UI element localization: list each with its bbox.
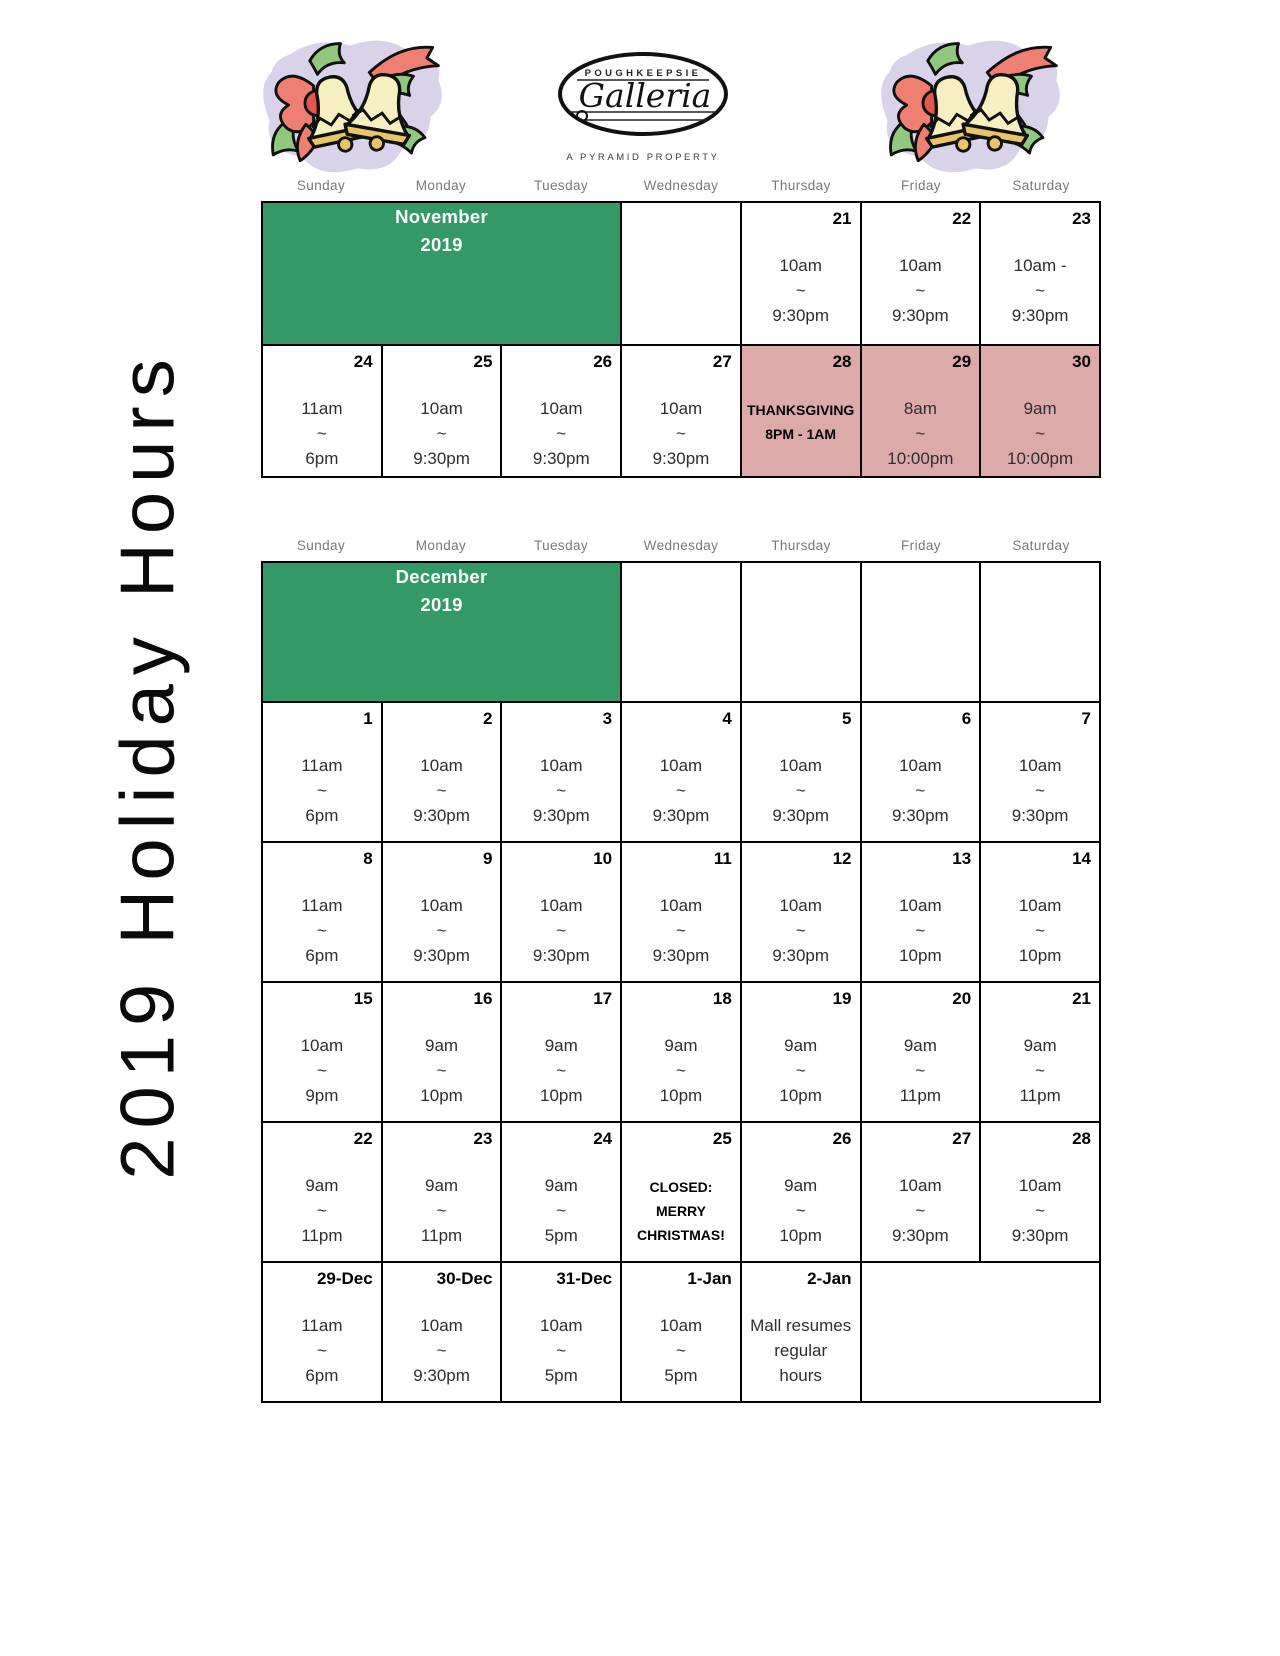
empty-day-cell [621, 202, 741, 345]
date-label: 9 [383, 843, 501, 869]
date-label: 15 [263, 983, 381, 1009]
store-hours: 10am~5pm [502, 1313, 620, 1388]
galleria-logo-oval: POUGHKEEPSIE Galleria [555, 50, 731, 142]
bells-icon [874, 34, 1066, 178]
store-hours: 9am~10pm [622, 1033, 740, 1108]
store-hours: 10am~10pm [981, 893, 1099, 968]
day-cell: 1310am~10pm [861, 842, 981, 982]
store-hours: 10am~9:30pm [862, 1173, 980, 1248]
holiday-hours-page: 2019 Holiday Hours POUGHKEEPSIE Galleria… [0, 0, 1280, 1656]
store-hours: 9am~11pm [981, 1033, 1099, 1108]
store-hours: 9am~10pm [742, 1173, 860, 1248]
date-label: 24 [502, 1123, 620, 1149]
day-cell: 310am~9:30pm [501, 702, 621, 842]
weekday-label: Saturday [981, 178, 1101, 193]
date-label: 31-Dec [502, 1263, 620, 1289]
weekday-label: Tuesday [501, 538, 621, 553]
weekday-label: Wednesday [621, 178, 741, 193]
date-label: 28 [742, 346, 860, 372]
date-label: 26 [742, 1123, 860, 1149]
store-hours: 10am~9:30pm [383, 893, 501, 968]
date-label: 8 [263, 843, 381, 869]
day-cell: 210am~9:30pm [382, 702, 502, 842]
day-cell: 25CLOSED:MERRYCHRISTMAS! [621, 1122, 741, 1262]
weekday-label: Friday [861, 538, 981, 553]
date-label: 11 [622, 843, 740, 869]
store-hours: 10am -~9:30pm [981, 253, 1099, 328]
day-cell: 1510am~9pm [262, 982, 382, 1122]
day-cell: 2610am~9:30pm [501, 345, 621, 477]
date-label: 16 [383, 983, 501, 1009]
store-hours: 11am~6pm [263, 1313, 381, 1388]
date-label: 20 [862, 983, 980, 1009]
store-hours: 10am~9:30pm [502, 893, 620, 968]
store-hours: 9am~11pm [383, 1173, 501, 1248]
day-cell: 30-Dec10am~9:30pm [382, 1262, 502, 1402]
day-cell: 179am~10pm [501, 982, 621, 1122]
weekday-label: Tuesday [501, 178, 621, 193]
blank-area [861, 1262, 981, 1402]
christmas-bells-image [874, 34, 1066, 178]
day-cell: 2710am~9:30pm [621, 345, 741, 477]
date-label: 25 [622, 1123, 740, 1149]
store-hours: 11am~6pm [263, 753, 381, 828]
day-cell: 2510am~9:30pm [382, 345, 502, 477]
day-cell: 169am~10pm [382, 982, 502, 1122]
date-label: 30 [981, 346, 1099, 372]
weekday-label: Sunday [261, 538, 381, 553]
date-label: 6 [862, 703, 980, 729]
day-cell: 610am~9:30pm [861, 702, 981, 842]
weekday-label: Monday [381, 538, 501, 553]
store-hours: 9am~11pm [263, 1173, 381, 1248]
day-cell: 2210am~9:30pm [861, 202, 981, 345]
store-hours: 10am~9:30pm [862, 753, 980, 828]
store-hours: 10am~9:30pm [383, 1313, 501, 1388]
holiday-note: THANKSGIVING8PM - 1AM [742, 398, 860, 446]
store-hours: 9am~10pm [502, 1033, 620, 1108]
day-cell: 2310am -~9:30pm [980, 202, 1100, 345]
empty-day-cell [741, 562, 861, 702]
date-label: 2 [383, 703, 501, 729]
store-hours: 9am~11pm [862, 1033, 980, 1108]
weekday-label: Wednesday [621, 538, 741, 553]
day-cell: 28THANKSGIVING8PM - 1AM [741, 345, 861, 477]
day-cell: 298am~10:00pm [861, 345, 981, 477]
date-label: 21 [981, 983, 1099, 1009]
day-cell: 209am~11pm [861, 982, 981, 1122]
day-cell: 910am~9:30pm [382, 842, 502, 982]
day-cell: 1-Jan10am~5pm [621, 1262, 741, 1402]
date-label: 13 [862, 843, 980, 869]
store-hours: 10am~9:30pm [981, 753, 1099, 828]
weekday-label: Friday [861, 178, 981, 193]
date-label: 27 [862, 1123, 980, 1149]
store-hours: 10am~9:30pm [383, 396, 501, 471]
day-cell: 2810am~9:30pm [980, 1122, 1100, 1262]
page-title: 2019 Holiday Hours [105, 350, 192, 1180]
store-hours: 10am~10pm [862, 893, 980, 968]
store-hours: 10am~9:30pm [622, 893, 740, 968]
day-cell: 2110am~9:30pm [741, 202, 861, 345]
day-cell: 31-Dec10am~5pm [501, 1262, 621, 1402]
day-cell: 229am~11pm [262, 1122, 382, 1262]
date-label: 14 [981, 843, 1099, 869]
date-label: 22 [263, 1123, 381, 1149]
day-cell: 1210am~9:30pm [741, 842, 861, 982]
date-label: 25 [383, 346, 501, 372]
day-cell: 249am~5pm [501, 1122, 621, 1262]
date-label: 17 [502, 983, 620, 1009]
store-hours: 9am~10pm [742, 1033, 860, 1108]
day-cell: 2710am~9:30pm [861, 1122, 981, 1262]
november-title: November2019 [262, 202, 621, 345]
store-hours: 10am~9:30pm [622, 753, 740, 828]
weekday-label: Thursday [741, 538, 861, 553]
date-label: 4 [622, 703, 740, 729]
november-grid: November20192110am~9:30pm2210am~9:30pm23… [261, 201, 1101, 478]
store-hours: Mall resumesregularhours [742, 1313, 860, 1388]
bells-icon [256, 34, 448, 178]
store-hours: 10am~5pm [622, 1313, 740, 1388]
date-label: 1-Jan [622, 1263, 740, 1289]
store-hours: 10am~9pm [263, 1033, 381, 1108]
weekday-label: Sunday [261, 178, 381, 193]
date-label: 18 [622, 983, 740, 1009]
store-hours: 10am~9:30pm [862, 253, 980, 328]
weekday-header-row: SundayMondayTuesdayWednesdayThursdayFrid… [261, 538, 1101, 553]
day-cell: 2411am~6pm [262, 345, 382, 477]
day-cell: 309am~10:00pm [980, 345, 1100, 477]
day-cell: 2-JanMall resumesregularhours [741, 1262, 861, 1402]
date-label: 1 [263, 703, 381, 729]
day-cell: 29-Dec11am~6pm [262, 1262, 382, 1402]
date-label: 21 [742, 203, 860, 229]
weekday-label: Thursday [741, 178, 861, 193]
date-label: 26 [502, 346, 620, 372]
empty-day-cell [980, 562, 1100, 702]
day-cell: 1410am~10pm [980, 842, 1100, 982]
store-hours: 9am~10pm [383, 1033, 501, 1108]
date-label: 28 [981, 1123, 1099, 1149]
store-hours: 11am~6pm [263, 893, 381, 968]
date-label: 5 [742, 703, 860, 729]
day-cell: 510am~9:30pm [741, 702, 861, 842]
weekday-header-row: SundayMondayTuesdayWednesdayThursdayFrid… [261, 178, 1101, 193]
empty-day-cell [861, 562, 981, 702]
day-cell: 710am~9:30pm [980, 702, 1100, 842]
december-calendar: SundayMondayTuesdayWednesdayThursdayFrid… [261, 538, 1101, 1403]
date-label: 12 [742, 843, 860, 869]
day-cell: 239am~11pm [382, 1122, 502, 1262]
day-cell: 189am~10pm [621, 982, 741, 1122]
date-label: 29-Dec [263, 1263, 381, 1289]
day-cell: 269am~10pm [741, 1122, 861, 1262]
logo-script-text: Galleria [579, 76, 712, 115]
december-grid: December2019111am~6pm210am~9:30pm310am~9… [261, 561, 1101, 1403]
date-label: 3 [502, 703, 620, 729]
day-cell: 219am~11pm [980, 982, 1100, 1122]
december-title: December2019 [262, 562, 621, 702]
day-cell: 1010am~9:30pm [501, 842, 621, 982]
store-hours: 10am~9:30pm [981, 1173, 1099, 1248]
galleria-logo: POUGHKEEPSIE Galleria A PYRAMID PROPERTY [555, 50, 731, 163]
date-label: 29 [862, 346, 980, 372]
date-label: 27 [622, 346, 740, 372]
store-hours: 10am~9:30pm [742, 253, 860, 328]
day-cell: 1110am~9:30pm [621, 842, 741, 982]
store-hours: 10am~9:30pm [622, 396, 740, 471]
weekday-label: Saturday [981, 538, 1101, 553]
store-hours: 9am~5pm [502, 1173, 620, 1248]
store-hours: 10am~9:30pm [502, 753, 620, 828]
date-label: 10 [502, 843, 620, 869]
blank-area [980, 1262, 1100, 1402]
date-label: 23 [981, 203, 1099, 229]
empty-day-cell [621, 562, 741, 702]
store-hours: 8am~10:00pm [862, 396, 980, 471]
date-label: 24 [263, 346, 381, 372]
date-label: 19 [742, 983, 860, 1009]
date-label: 2-Jan [742, 1263, 860, 1289]
holiday-note: CLOSED:MERRYCHRISTMAS! [622, 1175, 740, 1247]
day-cell: 811am~6pm [262, 842, 382, 982]
date-label: 23 [383, 1123, 501, 1149]
weekday-label: Monday [381, 178, 501, 193]
day-cell: 199am~10pm [741, 982, 861, 1122]
store-hours: 9am~10:00pm [981, 396, 1099, 471]
day-cell: 410am~9:30pm [621, 702, 741, 842]
store-hours: 10am~9:30pm [742, 753, 860, 828]
date-label: 22 [862, 203, 980, 229]
november-calendar: SundayMondayTuesdayWednesdayThursdayFrid… [261, 178, 1101, 478]
day-cell: 111am~6pm [262, 702, 382, 842]
store-hours: 10am~9:30pm [502, 396, 620, 471]
logo-tagline: A PYRAMID PROPERTY [555, 152, 731, 163]
store-hours: 11am~6pm [263, 396, 381, 471]
date-label: 7 [981, 703, 1099, 729]
christmas-bells-image [256, 34, 448, 178]
store-hours: 10am~9:30pm [742, 893, 860, 968]
date-label: 30-Dec [383, 1263, 501, 1289]
store-hours: 10am~9:30pm [383, 753, 501, 828]
